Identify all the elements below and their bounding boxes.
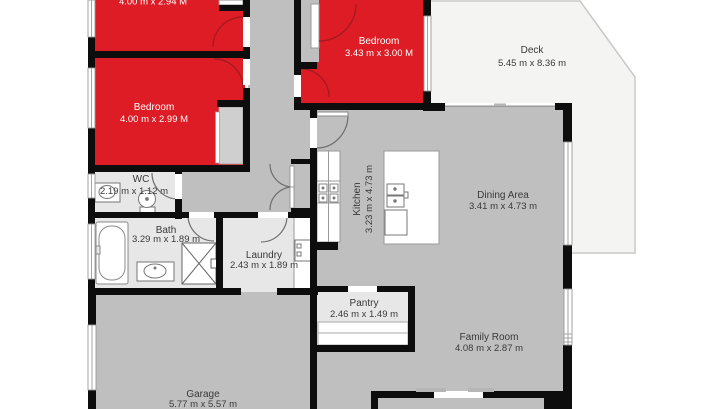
svg-text:Dining Area: Dining Area (477, 190, 529, 201)
svg-text:3.29 m x 1.89 m: 3.29 m x 1.89 m (132, 234, 200, 245)
svg-text:Family Room: Family Room (460, 332, 519, 343)
svg-text:Deck: Deck (521, 45, 545, 56)
svg-text:WC: WC (133, 174, 150, 185)
svg-text:4.08 m x 2.87 m: 4.08 m x 2.87 m (455, 343, 523, 354)
svg-text:4.00 m x 2.94 M: 4.00 m x 2.94 M (119, 0, 187, 8)
svg-text:2.19 m x 1.12 m: 2.19 m x 1.12 m (100, 186, 168, 197)
svg-text:3.41 m x 4.73 m: 3.41 m x 4.73 m (469, 201, 537, 212)
svg-text:Pantry: Pantry (350, 298, 379, 309)
svg-text:Bedroom: Bedroom (359, 36, 400, 47)
svg-text:3.23 m x 4.73 m: 3.23 m x 4.73 m (364, 165, 375, 233)
svg-text:5.45 m x 8.36 m: 5.45 m x 8.36 m (498, 58, 566, 69)
svg-text:Bedroom: Bedroom (134, 102, 175, 113)
svg-text:3.43 m x 3.00 M: 3.43 m x 3.00 M (345, 48, 413, 59)
svg-text:5.77 m x 5.57 m: 5.77 m x 5.57 m (169, 399, 237, 409)
svg-text:2.46 m x 1.49 m: 2.46 m x 1.49 m (330, 309, 398, 320)
svg-text:4.00 m x 2.99 M: 4.00 m x 2.99 M (120, 114, 188, 125)
svg-text:Kitchen: Kitchen (352, 182, 363, 215)
svg-text:2.43 m x 1.89 m: 2.43 m x 1.89 m (230, 260, 298, 271)
